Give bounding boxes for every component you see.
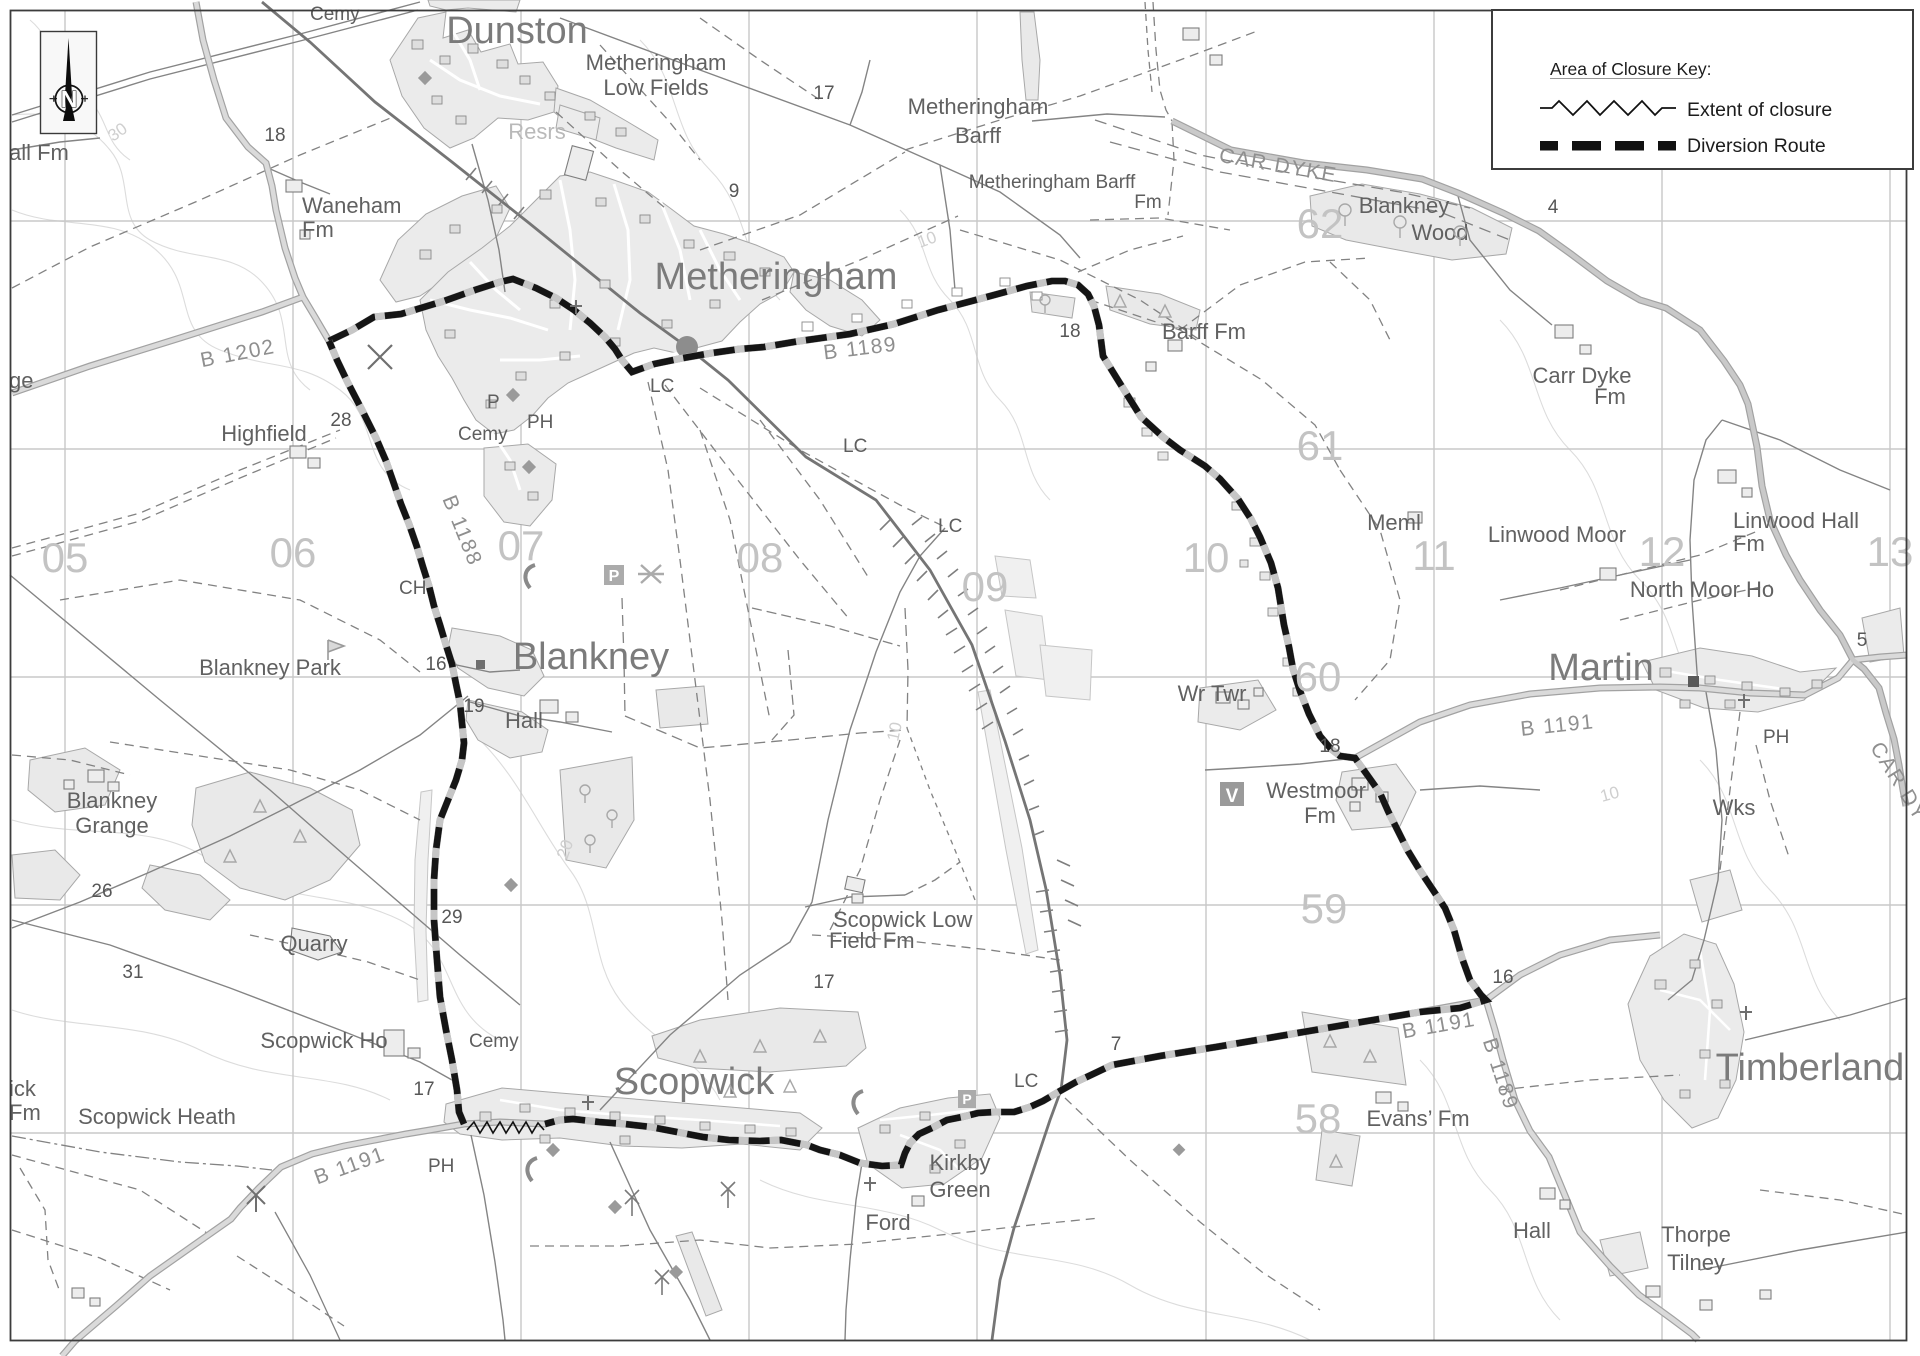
svg-text:Blankney: Blankney (513, 636, 669, 678)
svg-text:all Fm: all Fm (9, 140, 69, 165)
svg-text:Evans’ Fm: Evans’ Fm (1366, 1106, 1469, 1131)
svg-text:LC: LC (1014, 1071, 1038, 1092)
svg-text:17: 17 (813, 83, 834, 104)
svg-text:Diversion Route: Diversion Route (1687, 135, 1826, 157)
svg-text:19: 19 (463, 696, 484, 717)
svg-text:06: 06 (270, 529, 317, 576)
svg-text:5: 5 (1857, 630, 1868, 651)
svg-text:Blankney: Blankney (67, 788, 158, 813)
svg-text:31: 31 (122, 962, 143, 983)
svg-text:58: 58 (1295, 1095, 1342, 1142)
svg-text:LC: LC (650, 376, 674, 397)
svg-text:Area of Closure Key:: Area of Closure Key: (1550, 59, 1711, 79)
svg-text:Metheringham Barff: Metheringham Barff (969, 172, 1136, 193)
svg-text:Fm: Fm (1733, 531, 1765, 556)
svg-text:05: 05 (42, 534, 89, 581)
svg-text:60: 60 (1295, 653, 1342, 700)
svg-text:Grange: Grange (75, 813, 148, 838)
svg-text:Blankney Park: Blankney Park (199, 655, 342, 680)
svg-text:61: 61 (1297, 422, 1344, 469)
svg-text:26: 26 (91, 881, 112, 902)
svg-text:08: 08 (737, 534, 784, 581)
svg-text:P: P (609, 568, 620, 585)
svg-text:Hall: Hall (505, 708, 543, 733)
svg-text:Low Fields: Low Fields (603, 75, 708, 100)
svg-text:Scopwick: Scopwick (614, 1061, 775, 1103)
svg-text:Fm: Fm (1134, 192, 1161, 213)
svg-text:Resrs: Resrs (508, 119, 565, 144)
svg-text:7: 7 (1111, 1034, 1122, 1055)
svg-text:LC: LC (843, 436, 867, 457)
svg-text:10: 10 (1183, 534, 1230, 581)
svg-text:Linwood Moor: Linwood Moor (1488, 522, 1626, 547)
svg-text:ge: ge (9, 368, 33, 393)
svg-text:62: 62 (1297, 200, 1344, 247)
svg-text:ick: ick (9, 1076, 37, 1101)
svg-text:Metheringham: Metheringham (586, 50, 727, 75)
svg-text:12: 12 (1639, 528, 1686, 575)
svg-text:N: N (61, 86, 78, 112)
svg-text:59: 59 (1301, 885, 1348, 932)
svg-text:Martin: Martin (1548, 647, 1654, 689)
svg-text:17: 17 (813, 972, 834, 993)
svg-text:Fm: Fm (1594, 384, 1626, 409)
svg-text:Green: Green (929, 1177, 990, 1202)
svg-text:18: 18 (1319, 736, 1340, 757)
svg-text:Thorpe: Thorpe (1661, 1222, 1731, 1247)
svg-text:V: V (1226, 786, 1239, 807)
svg-text:29: 29 (441, 907, 462, 928)
svg-text:LC: LC (938, 516, 962, 537)
svg-text:Fm: Fm (1304, 803, 1336, 828)
svg-text:Scopwick Ho: Scopwick Ho (260, 1028, 387, 1053)
svg-text:Metheringham: Metheringham (655, 256, 898, 298)
svg-text:Barff: Barff (955, 123, 1002, 148)
svg-text:Metheringham: Metheringham (908, 94, 1049, 119)
svg-text:11: 11 (1412, 532, 1456, 579)
svg-text:18: 18 (264, 125, 285, 146)
svg-text:Wr Twr: Wr Twr (1178, 681, 1247, 706)
svg-text:P: P (962, 1091, 971, 1107)
svg-text:Ford: Ford (865, 1210, 910, 1235)
svg-text:Westmoor: Westmoor (1266, 778, 1366, 803)
svg-text:16: 16 (425, 654, 446, 675)
svg-text:Tilney: Tilney (1667, 1250, 1725, 1275)
svg-text:Cemy: Cemy (310, 4, 360, 25)
svg-text:P: P (487, 392, 500, 413)
svg-text:North Moor Ho: North Moor Ho (1630, 577, 1774, 602)
svg-text:9: 9 (729, 181, 740, 202)
svg-text:Wks: Wks (1713, 795, 1756, 820)
svg-text:09: 09 (962, 563, 1009, 610)
svg-text:Fm: Fm (302, 217, 334, 242)
svg-text:17: 17 (413, 1079, 434, 1100)
svg-text:Hall: Hall (1513, 1218, 1551, 1243)
svg-text:PH: PH (1763, 727, 1789, 748)
svg-text:Cemy: Cemy (458, 424, 508, 445)
svg-text:Cemy: Cemy (469, 1031, 519, 1052)
svg-text:10: 10 (883, 720, 906, 742)
svg-text:PH: PH (527, 412, 553, 433)
svg-text:Quarry: Quarry (280, 931, 347, 956)
svg-text:Timberland: Timberland (1716, 1047, 1905, 1089)
svg-text:CH: CH (399, 578, 426, 599)
svg-text:Blankney: Blankney (1359, 193, 1450, 218)
svg-text:Waneham: Waneham (302, 193, 401, 218)
svg-text:PH: PH (428, 1156, 454, 1177)
svg-text:Kirkby: Kirkby (929, 1150, 990, 1175)
svg-text:16: 16 (1492, 967, 1513, 988)
svg-text:Field Fm: Field Fm (829, 928, 915, 953)
svg-text:18: 18 (1059, 321, 1080, 342)
svg-text:Extent of closure: Extent of closure (1687, 99, 1832, 121)
svg-text:Highfield: Highfield (221, 421, 307, 446)
svg-text:28: 28 (330, 410, 351, 431)
svg-text:Dunston: Dunston (446, 10, 588, 52)
svg-text:Linwood Hall: Linwood Hall (1733, 508, 1859, 533)
svg-text:Scopwick Heath: Scopwick Heath (78, 1104, 236, 1129)
svg-text:Barff Fm: Barff Fm (1162, 319, 1246, 344)
svg-text:4: 4 (1548, 197, 1559, 218)
svg-text:07: 07 (498, 522, 545, 569)
svg-text:Fm: Fm (9, 1100, 41, 1125)
